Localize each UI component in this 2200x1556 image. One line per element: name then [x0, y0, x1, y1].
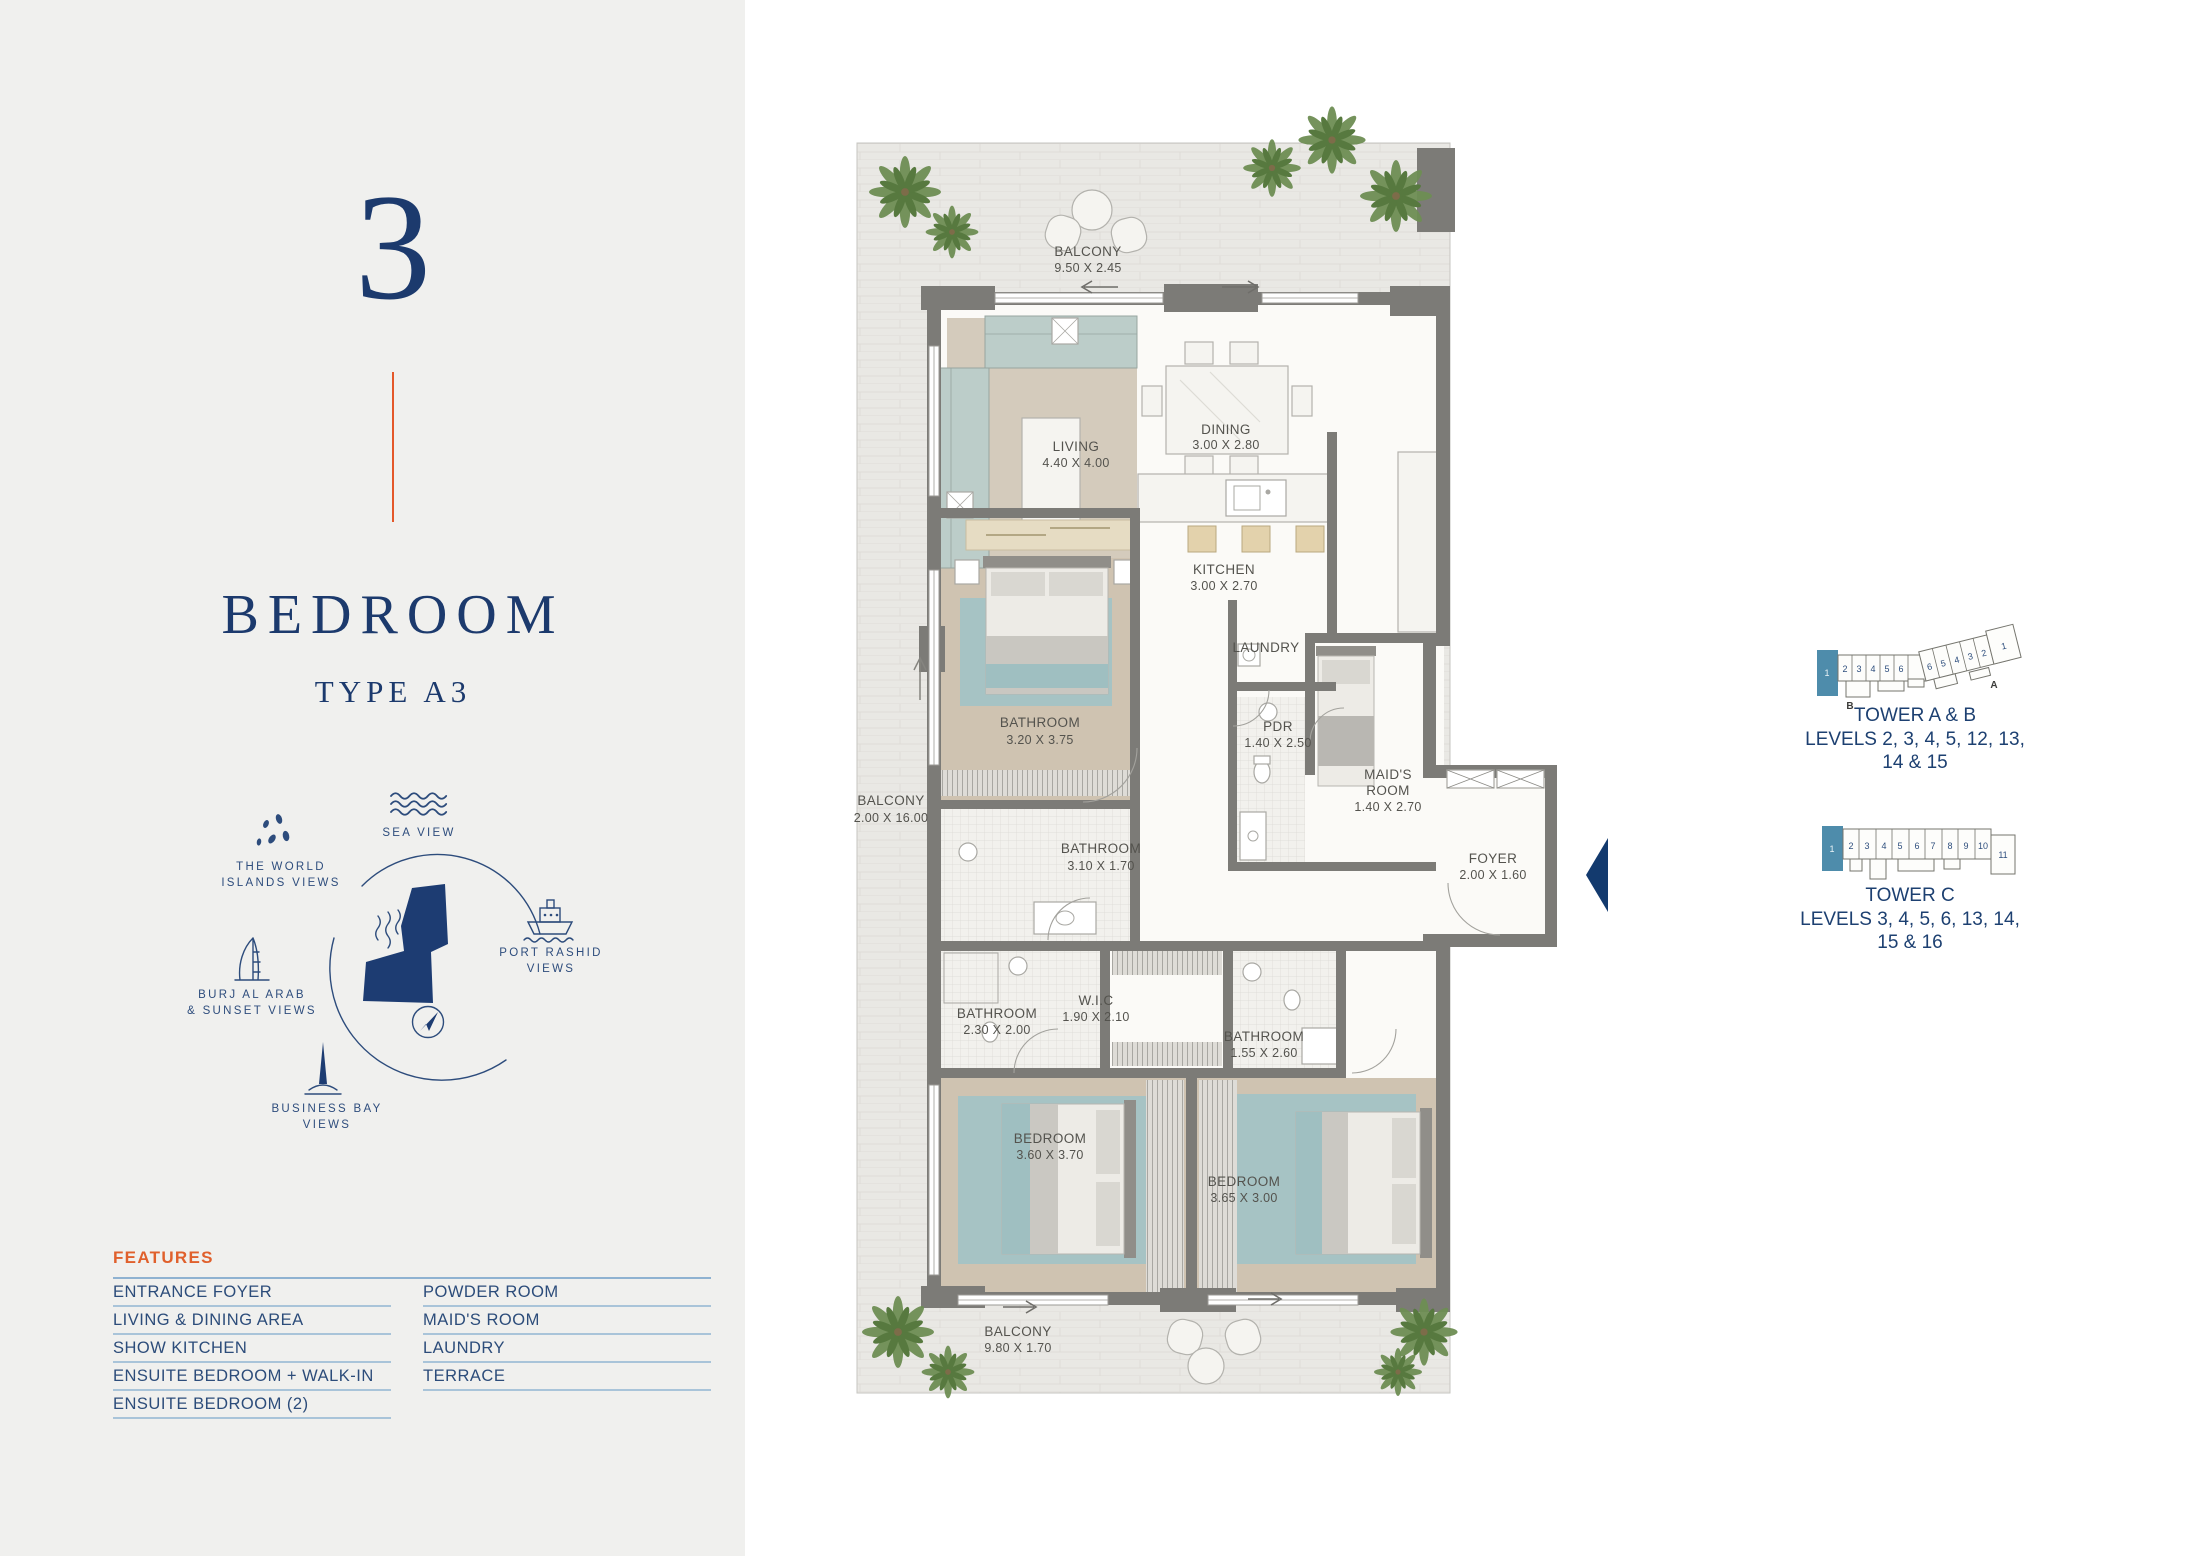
burj-al-arab-icon: [235, 938, 269, 980]
room-label: BEDROOM: [1208, 1174, 1281, 1189]
tower-c-levels-1: LEVELS 3, 4, 5, 6, 13, 14,: [1765, 908, 2055, 932]
entrance-arrow: [1586, 838, 1608, 912]
room-label: KITCHEN: [1193, 562, 1255, 577]
room-dims: 9.80 X 1.70: [984, 1341, 1051, 1355]
unit-number: 6: [1914, 841, 1919, 851]
room-dims: 3.20 X 3.75: [1006, 733, 1073, 747]
business-bay-icon: [305, 1042, 341, 1094]
world-islands-label-2: ISLANDS VIEWS: [221, 877, 340, 889]
room-dims: 2.00 X 1.60: [1459, 868, 1526, 882]
feature-item: LAUNDRY: [423, 1335, 711, 1363]
feature-item: POWDER ROOM: [423, 1279, 711, 1307]
feature-item: TERRACE: [423, 1363, 711, 1391]
tower-c-levels-2: 15 & 16: [1765, 931, 2055, 955]
feature-item: SHOW KITCHEN: [113, 1335, 391, 1363]
features-heading: FEATURES: [113, 1248, 711, 1268]
burj-label-2: & SUNSET VIEWS: [187, 1005, 317, 1017]
room-label: BATHROOM: [1000, 715, 1080, 730]
room-dims: 4.40 X 4.00: [1042, 456, 1109, 470]
room-label: PDR: [1263, 719, 1293, 734]
bedroom2-bed: [1002, 1100, 1136, 1258]
room-dims: 3.10 X 1.70: [1067, 859, 1134, 873]
kitchen-counter: [1398, 452, 1438, 632]
room-label: LIVING: [1053, 439, 1100, 454]
business-bay-label-2: VIEWS: [303, 1119, 352, 1131]
unit-number: 5: [1884, 664, 1889, 674]
room-label: BATHROOM: [957, 1006, 1037, 1021]
unit-number: 4: [1881, 841, 1886, 851]
room-label: BALCONY: [857, 793, 924, 808]
unit-number: 2: [1848, 841, 1853, 851]
room-label: BALCONY: [1054, 244, 1121, 259]
brochure-page: 3 BEDROOM TYPE A3 SEA VIEW THE WORLD ISL…: [0, 0, 2200, 1556]
room-label: MAID'S: [1364, 767, 1412, 782]
tower-ab-caption: TOWER A & B LEVELS 2, 3, 4, 5, 12, 13, 1…: [1770, 704, 2060, 775]
unit-number: 2: [1842, 664, 1847, 674]
views-compass-diagram: SEA VIEW THE WORLD ISLANDS VIEWS: [150, 780, 630, 1140]
highlight-unit-number: 1: [1829, 844, 1834, 854]
maids-bed: [1316, 646, 1376, 786]
room-dims: 1.40 X 2.50: [1244, 736, 1311, 750]
room-dims: 9.50 X 2.45: [1054, 261, 1121, 275]
unit-number: 6: [1898, 664, 1903, 674]
tower-ab-title: TOWER A & B: [1770, 704, 2060, 728]
room-label: BATHROOM: [1224, 1029, 1304, 1044]
wing-b-outline: [1838, 655, 1926, 681]
bedroom3-bed: [1296, 1108, 1432, 1258]
business-bay-label-1: BUSINESS BAY: [271, 1103, 382, 1115]
ac-box: [1052, 318, 1078, 344]
room-dims: 1.40 X 2.70: [1354, 800, 1421, 814]
room-dims: 2.00 X 16.00: [854, 811, 929, 825]
unit-type-subtitle: TYPE A3: [93, 674, 693, 710]
sea-view-label: SEA VIEW: [382, 827, 455, 839]
port-rashid-label-2: VIEWS: [527, 963, 576, 975]
tower-ab-keyplan: 1 2 3 4 5 6 6 5 4 3 2 1 B A: [1795, 615, 2035, 715]
room-label: FOYER: [1469, 851, 1518, 866]
room-dims: 3.65 X 3.00: [1210, 1191, 1277, 1205]
port-rashid-label-1: PORT RASHID: [499, 947, 602, 959]
room-label: BATHROOM: [1061, 841, 1141, 856]
feature-item: MAID'S ROOM: [423, 1307, 711, 1335]
room-dims: 3.00 X 2.70: [1190, 579, 1257, 593]
tower-ab-levels-1: LEVELS 2, 3, 4, 5, 12, 13,: [1770, 728, 2060, 752]
world-islands-icon: [256, 813, 290, 846]
room-dims: 1.55 X 2.60: [1230, 1046, 1297, 1060]
room-dims: 3.60 X 3.70: [1016, 1148, 1083, 1162]
tower-c-title: TOWER C: [1765, 884, 2055, 908]
room-label: BALCONY: [984, 1324, 1051, 1339]
accent-divider: [392, 372, 394, 522]
page-title: BEDROOM: [93, 583, 693, 647]
feature-item: ENSUITE BEDROOM (2): [113, 1391, 391, 1419]
features-column-2: POWDER ROOM MAID'S ROOM LAUNDRY TERRACE: [423, 1279, 711, 1419]
wing-a-outline: 6 5 4 3 2 1: [1918, 624, 2024, 690]
features-column-1: ENTRANCE FOYER LIVING & DINING AREA SHOW…: [113, 1279, 391, 1419]
unit-number: 8: [1947, 841, 1952, 851]
room-label: W.I.C: [1079, 993, 1114, 1008]
room-label: ROOM: [1366, 783, 1410, 798]
unit-number: 7: [1930, 841, 1935, 851]
unit-number: 10: [1978, 841, 1988, 851]
feature-item: ENTRANCE FOYER: [113, 1279, 391, 1307]
compass-icon: [413, 1007, 444, 1038]
unit-number: 4: [1870, 664, 1875, 674]
feature-item: LIVING & DINING AREA: [113, 1307, 391, 1335]
unit-number: 11: [1998, 850, 2007, 860]
wing-a-letter: A: [1990, 680, 1997, 691]
kitchen-island: [1138, 474, 1334, 522]
port-rashid-ship-icon: [524, 900, 573, 942]
room-dims: 1.90 X 2.10: [1062, 1010, 1129, 1024]
room-label: BEDROOM: [1014, 1131, 1087, 1146]
building-footprint-logo: [330, 855, 540, 1081]
highlight-unit-number: 1: [1824, 668, 1829, 678]
kitchen-stools: [1188, 526, 1324, 552]
unit-number: 5: [1897, 841, 1902, 851]
tower-ab-levels-2: 14 & 15: [1770, 751, 2060, 775]
burj-label-1: BURJ AL ARAB: [198, 989, 306, 1001]
unit-number: 3: [1856, 664, 1861, 674]
room-label: DINING: [1201, 422, 1251, 437]
world-islands-label-1: THE WORLD: [236, 861, 326, 873]
feature-item: ENSUITE BEDROOM + WALK-IN: [113, 1363, 391, 1391]
bedroom-count: 3: [293, 168, 493, 326]
room-dims: 2.30 X 2.00: [963, 1023, 1030, 1037]
unit-number: 9: [1963, 841, 1968, 851]
unit-number: 3: [1864, 841, 1869, 851]
room-dims: 3.00 X 2.80: [1192, 438, 1259, 452]
sea-waves-icon: [391, 793, 446, 815]
floor-plan: BALCONY 9.50 X 2.45 LIVING 4.40 X 4.00 D…: [850, 90, 1620, 1405]
sidebar: 3 BEDROOM TYPE A3 SEA VIEW THE WORLD ISL…: [0, 0, 745, 1556]
features-section: FEATURES ENTRANCE FOYER LIVING & DINING …: [113, 1248, 711, 1419]
tower-c-caption: TOWER C LEVELS 3, 4, 5, 6, 13, 14, 15 & …: [1765, 884, 2055, 955]
room-label: LAUNDRY: [1232, 640, 1299, 655]
